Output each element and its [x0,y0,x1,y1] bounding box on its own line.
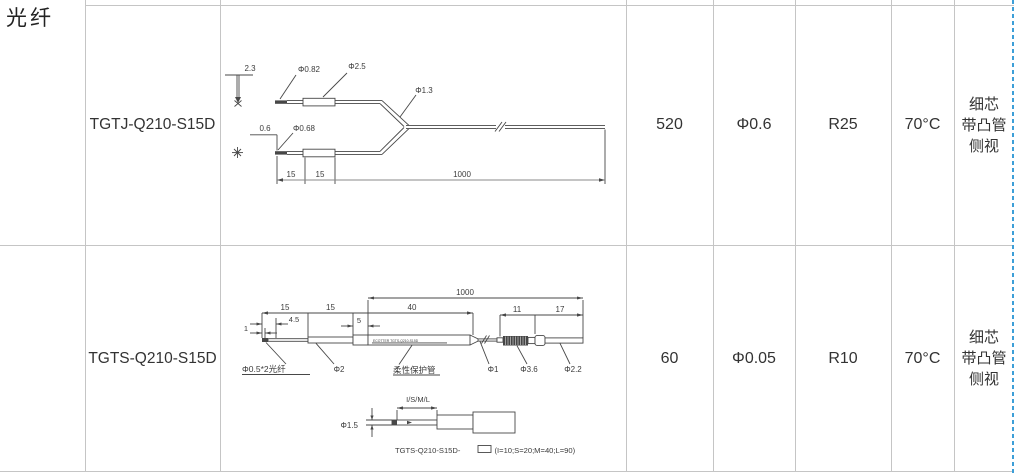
catalog-page: 光纤 TGTJ-Q210-S15D 520 Φ0.6 R25 70°C 细芯 带… [0,0,1020,475]
tube-print-text: ECOTTER TGTS-Q210-S15D [373,339,419,343]
dimension-label: Φ1.3 [415,86,433,95]
technical-drawing-tgts: 1000 15 15 40 4.5 5 1 [220,245,627,472]
dimension-label: 40 [408,303,417,312]
dimension-label: 15 [287,170,296,179]
dimension-label: Φ2.5 [348,62,366,71]
view-cell: 细芯 带凸管 侧视 [954,5,1014,245]
view-line: 带凸管 [961,348,1006,369]
dimension-label: Φ0.68 [293,124,316,133]
param-cell: 70°C [891,5,954,245]
page-break-line [1012,0,1014,475]
dimension-label: Φ3.6 [520,365,538,374]
view-line: 细芯 [969,327,999,348]
technical-drawing-tgtj: 2.3 Φ0.82 Φ2.5 Φ1.3 0.6 Φ0.68 [220,5,627,245]
model-cell: TGTJ-Q210-S15D [85,5,220,245]
param-cell: R10 [795,245,891,472]
category-label: 光纤 [6,2,54,32]
dimension-label: 15 [326,303,335,312]
dimension-label: 15 [316,170,325,179]
param-cell: Φ0.6 [713,5,795,245]
dimension-label: Φ2 [334,365,345,374]
dimension-label: Φ1 [488,365,499,374]
dimension-label: I/S/M/L [406,395,430,404]
dimension-label: 1000 [456,288,474,297]
view-line: 带凸管 [961,115,1006,136]
dimension-label: 0.6 [259,124,271,133]
fiber-label: Φ0.5*2光纤 [242,364,286,374]
dimension-label: Φ1.5 [340,421,358,430]
model-cell: TGTS-Q210-S15D [85,245,220,472]
dimension-label: Φ0.82 [298,65,321,74]
dimension-label: 1 [244,324,248,333]
dimension-label: 17 [556,305,565,314]
dimension-label: 1000 [453,170,471,179]
order-code-suffix: (I=10;S=20;M=40;L=90) [495,446,576,455]
order-code: TGTS-Q210-S15D- [395,446,461,455]
param-cell: 60 [626,245,713,472]
dimension-label: 2.3 [244,64,256,73]
dimension-label: 4.5 [289,315,299,324]
view-line: 侧视 [969,136,999,157]
tube-label: 柔性保护管 [393,365,436,375]
view-cell: 细芯 带凸管 侧视 [954,245,1014,472]
dimension-label: Φ2.2 [564,365,582,374]
param-cell: R25 [795,5,891,245]
view-line: 细芯 [969,94,999,115]
dimension-label: 11 [513,305,522,314]
dimension-label: 5 [357,316,361,325]
param-cell: 520 [626,5,713,245]
dimension-label: 15 [281,303,290,312]
param-cell: 70°C [891,245,954,472]
param-cell: Φ0.05 [713,245,795,472]
view-line: 侧视 [969,369,999,390]
